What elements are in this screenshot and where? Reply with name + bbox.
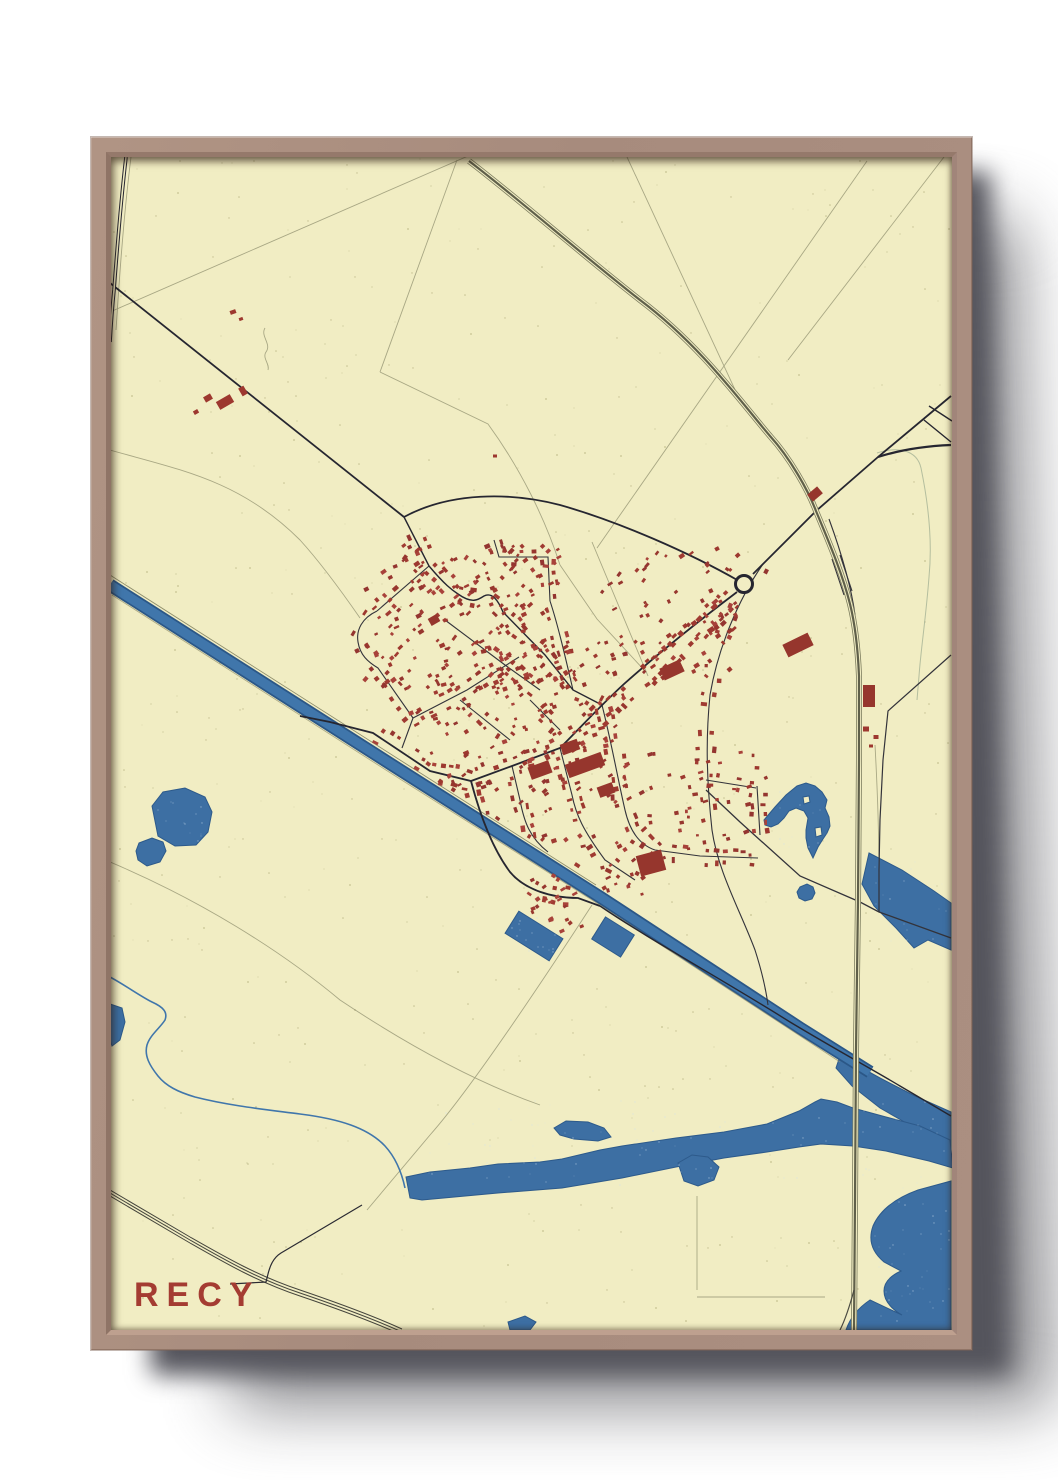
svg-text:RECY: RECY [134,1276,260,1314]
